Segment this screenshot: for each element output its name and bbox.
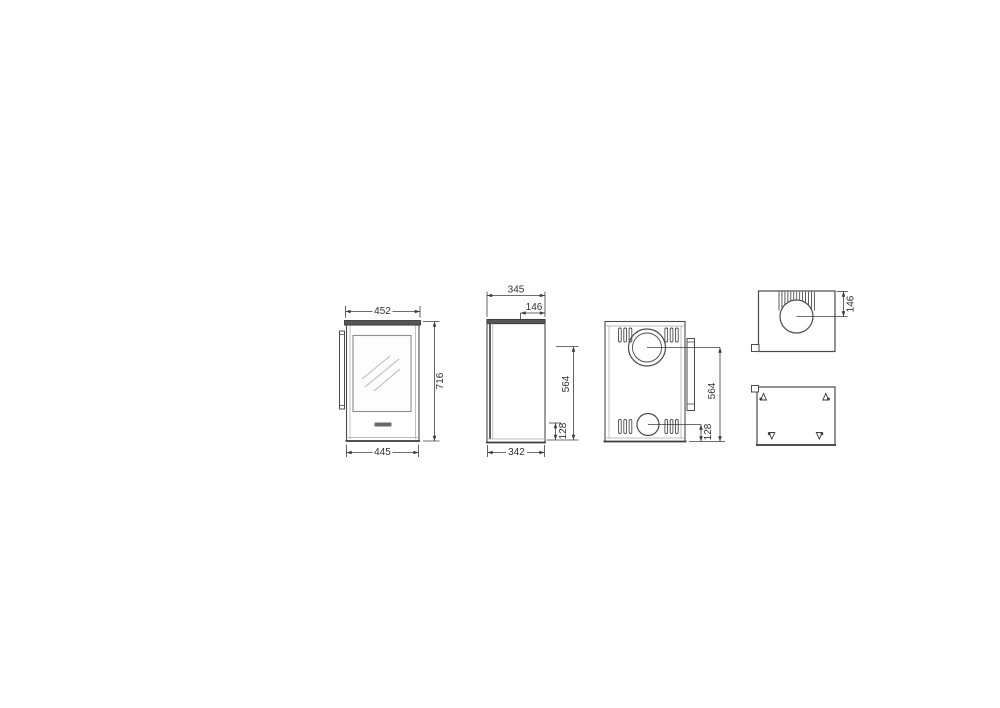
arrowhead — [539, 451, 544, 455]
back-view: 564 128 — [604, 322, 726, 442]
adjustable-foot-dot — [821, 432, 824, 435]
dim-label-front-height: 716 — [435, 372, 446, 389]
arrowhead — [487, 294, 492, 298]
dim-label-side-intake-height: 128 — [558, 422, 569, 439]
arrowhead — [842, 311, 846, 316]
dim-label-side-bottom-depth: 342 — [508, 447, 525, 458]
top-view: 146 — [752, 291, 857, 352]
front-view: 452 716 445 — [340, 306, 447, 458]
front-door-handle — [340, 331, 345, 409]
bottom-panel — [757, 387, 835, 445]
dim-label-side-flue-height: 564 — [561, 375, 572, 392]
dim-label-front-bottom-width: 445 — [374, 447, 391, 458]
back-door-handle — [687, 339, 695, 411]
arrowhead — [488, 451, 493, 455]
arrowhead — [554, 435, 558, 440]
arrowhead — [540, 294, 545, 298]
dim-label-front-top-width: 452 — [374, 306, 391, 317]
brand-logo — [375, 423, 392, 427]
handle-notch-top-view — [752, 345, 760, 352]
technical-drawing-page: 452 716 445 345 146 564 12 — [0, 0, 1000, 708]
arrowhead — [346, 310, 351, 314]
adjustable-foot-dot — [759, 398, 762, 401]
arrowhead — [718, 348, 722, 353]
adjustable-foot-dot — [827, 398, 830, 401]
arrowhead — [415, 310, 420, 314]
side-body — [487, 320, 545, 443]
arrowhead — [842, 292, 846, 297]
arrowhead — [554, 423, 558, 428]
side-top-plate — [487, 320, 545, 324]
front-top-plate — [345, 321, 421, 326]
arrowhead — [433, 322, 437, 327]
arrowhead — [572, 347, 576, 352]
arrowhead — [413, 451, 418, 455]
dim-label-side-top-depth: 345 — [508, 285, 525, 296]
dim-label-top-flue-offset: 146 — [846, 295, 857, 312]
arrowhead — [521, 311, 526, 315]
arrowhead — [347, 451, 352, 455]
arrowhead — [540, 311, 545, 315]
arrowhead — [433, 436, 437, 441]
adjustable-foot-dot — [768, 432, 771, 435]
dim-label-back-intake-height: 128 — [703, 423, 714, 440]
bottom-view — [752, 386, 837, 446]
side-view: 345 146 564 128 342 — [486, 285, 579, 459]
handle-notch-bottom-view — [752, 386, 759, 393]
arrowhead — [572, 435, 576, 440]
dim-label-back-flue-height: 564 — [707, 382, 718, 399]
stove-dimension-drawing: 452 716 445 345 146 564 12 — [0, 0, 1000, 708]
arrowhead — [718, 436, 722, 441]
